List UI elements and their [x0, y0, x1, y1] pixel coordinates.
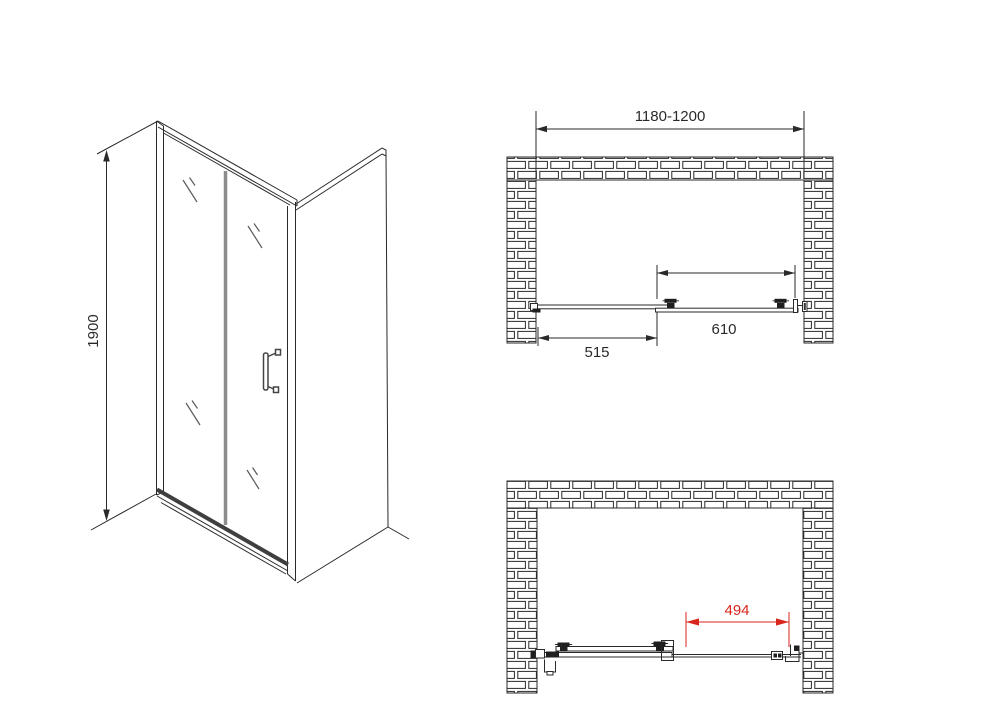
arrow-up-icon	[103, 150, 110, 162]
left-wall-profile	[157, 121, 164, 495]
fixed-panel-label: 515	[584, 344, 609, 361]
wall-right-column	[803, 508, 833, 693]
top-rail	[158, 121, 297, 206]
sliding-panel-label: 610	[711, 321, 736, 338]
plan-view-closed: 1180-1200	[507, 108, 833, 361]
height-dim-label: 1900	[85, 314, 102, 347]
door-handle	[264, 350, 281, 393]
door-stopper	[772, 652, 783, 660]
plan-view-open: 494	[507, 481, 833, 693]
sliding-panel-plan	[656, 308, 799, 312]
sliding-panel-dimension: 610	[657, 265, 795, 338]
wall-left-column	[507, 180, 536, 343]
bottom-rail	[157, 490, 288, 575]
wall-right-column	[804, 180, 833, 343]
arrow-left-icon	[536, 126, 547, 132]
arrow-down-icon	[103, 510, 110, 522]
arrow-right-icon	[793, 126, 804, 132]
fixed-panel-plan	[531, 304, 671, 313]
wall-top-band	[507, 157, 833, 180]
technical-drawing-canvas: 1900	[0, 0, 1000, 707]
wall-top-band	[507, 481, 833, 508]
clear-opening-dimension: 494	[686, 602, 789, 647]
fixed-panel-dimension: 515	[538, 312, 657, 361]
right-wall-hook	[786, 645, 805, 662]
wall-bracket-right	[794, 300, 808, 313]
height-dimension: 1900	[85, 121, 158, 530]
floor-line-right	[388, 527, 409, 539]
arrow-right-icon	[776, 618, 789, 625]
drawing-page: 1900	[0, 0, 1000, 707]
arrow-left-icon	[657, 270, 668, 276]
arrow-left-icon	[686, 618, 699, 625]
stacked-panels	[539, 647, 673, 658]
glass-reflection-marks	[183, 178, 262, 490]
arrow-left-icon	[538, 335, 549, 341]
opening-width-label: 1180-1200	[635, 108, 706, 125]
clear-opening-label: 494	[724, 602, 749, 619]
return-panel	[296, 148, 409, 583]
arrow-right-icon	[784, 270, 795, 276]
arrow-right-icon	[646, 335, 657, 341]
isometric-view: 1900	[85, 121, 409, 583]
wall-left-column	[507, 508, 537, 693]
brick-walls	[507, 157, 833, 343]
roller-clamps	[663, 299, 790, 308]
right-jamb	[288, 202, 296, 581]
